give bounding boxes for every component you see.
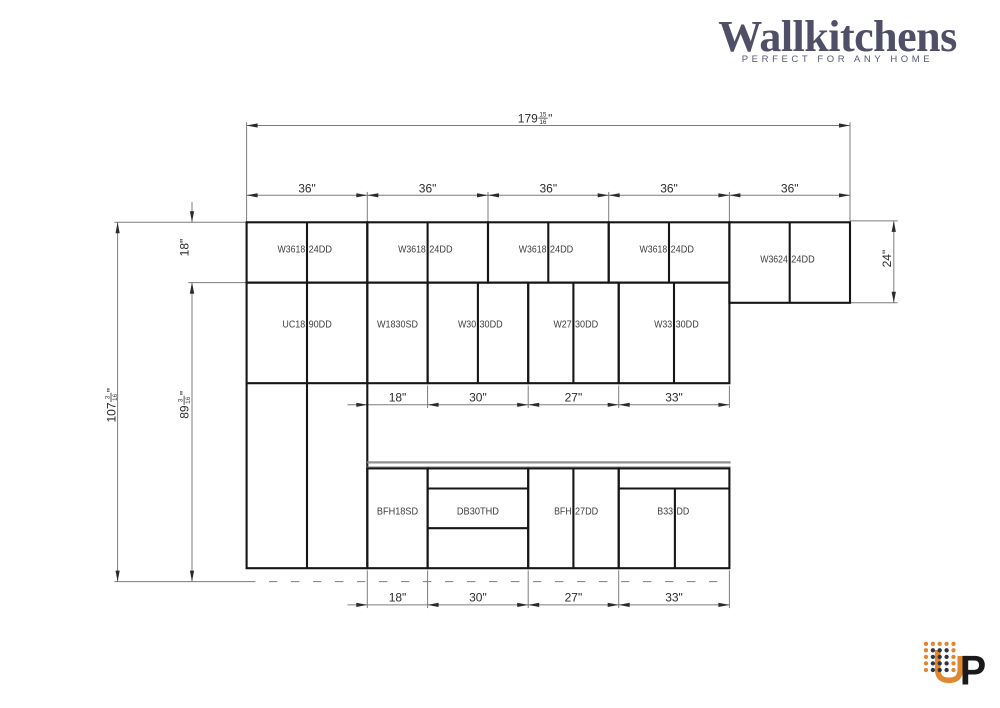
svg-text:3: 3: [178, 398, 185, 402]
svg-text:16: 16: [112, 393, 119, 401]
svg-text:24DD: 24DD: [671, 244, 694, 255]
svg-text:24DD: 24DD: [791, 255, 814, 266]
svg-text:W3618: W3618: [278, 244, 306, 255]
svg-text:18": 18": [178, 239, 192, 257]
svg-text:W3618: W3618: [398, 244, 426, 255]
svg-text:UC18: UC18: [282, 319, 305, 330]
svg-text:W3624: W3624: [760, 255, 788, 266]
svg-text:30DD: 30DD: [480, 319, 503, 330]
svg-text:W30: W30: [458, 319, 476, 330]
svg-text:33": 33": [665, 591, 683, 605]
svg-text:36": 36": [539, 182, 557, 196]
svg-text:89: 89: [178, 405, 192, 419]
svg-text:30": 30": [469, 390, 487, 404]
svg-text:24DD: 24DD: [550, 244, 573, 255]
svg-text:DB30THD: DB30THD: [457, 507, 499, 518]
svg-text:16: 16: [185, 396, 192, 404]
svg-text:": ": [548, 112, 552, 126]
svg-text:": ": [105, 388, 119, 392]
svg-text:18": 18": [389, 591, 407, 605]
svg-text:36": 36": [298, 182, 316, 196]
svg-text:30DD: 30DD: [575, 319, 598, 330]
svg-text:27": 27": [565, 591, 583, 605]
svg-text:24": 24": [880, 250, 894, 268]
svg-text:BFH18SD: BFH18SD: [377, 507, 418, 518]
svg-text:179: 179: [518, 112, 538, 126]
svg-text:30": 30": [469, 591, 487, 605]
svg-text:27": 27": [565, 390, 583, 404]
svg-text:W3618: W3618: [519, 244, 547, 255]
svg-text:P: P: [960, 647, 986, 694]
svg-text:W1830SD: W1830SD: [377, 319, 418, 330]
svg-text:W33: W33: [654, 319, 672, 330]
svg-text:24DD: 24DD: [309, 244, 332, 255]
svg-text:W27: W27: [554, 319, 572, 330]
svg-text:W3618: W3618: [640, 244, 668, 255]
svg-text:3: 3: [105, 395, 112, 399]
svg-text:BFH: BFH: [554, 507, 572, 518]
svg-text:30DD: 30DD: [676, 319, 699, 330]
svg-text:36": 36": [660, 182, 678, 196]
svg-text:18": 18": [389, 390, 407, 404]
svg-text:36": 36": [781, 182, 799, 196]
svg-text:": ": [178, 391, 192, 395]
svg-text:27DD: 27DD: [575, 507, 598, 518]
svg-text:15: 15: [539, 112, 547, 119]
svg-text:DD: DD: [677, 507, 690, 518]
svg-text:16: 16: [539, 119, 547, 126]
svg-text:33": 33": [665, 390, 683, 404]
svg-text:24DD: 24DD: [429, 244, 452, 255]
svg-text:90DD: 90DD: [309, 319, 332, 330]
svg-text:36": 36": [419, 182, 437, 196]
svg-text:B33: B33: [657, 507, 673, 518]
svg-text:107: 107: [105, 402, 119, 422]
